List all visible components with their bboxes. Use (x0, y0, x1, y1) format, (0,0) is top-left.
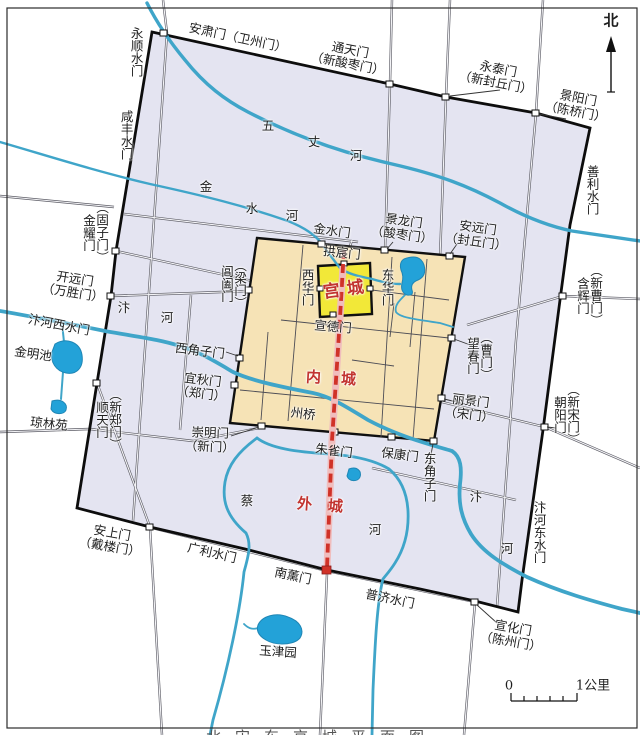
pond-zhuque (347, 468, 360, 481)
label-gate-shuntian: 顺天门 （新郑门） (95, 388, 121, 451)
label-gate-chongming: 崇明门 （新门） (185, 425, 236, 455)
lake-jinmingchi (52, 341, 83, 374)
kaifeng-song-capital-map: 永顺水门 咸丰水门 汴河西水门 广利水门 普济水门 善利水门 汴河东水门 安肃门… (0, 0, 640, 735)
label-gate-wangchun: 望春门 （曹门） (466, 331, 492, 381)
label-inner-city: 内城 (306, 369, 377, 389)
label-river-jinshui-3: 河 (286, 209, 299, 223)
label-gate-hanhui: 含辉门 （新曹门） (576, 264, 602, 327)
label-river-wuzhang-3: 河 (350, 149, 363, 163)
scale-bar (511, 693, 577, 701)
label-gate-jinyao: 金耀门 （固子门） (82, 201, 108, 264)
label-river-bianhe-west-1: 汴 (118, 301, 131, 315)
nanxun-gate-marker (322, 566, 331, 574)
label-gate-changhe: 阊阖门 （梁门） (220, 259, 246, 309)
label-xianfeng-water-gate: 咸丰水门 (119, 110, 132, 160)
pond-yujinyuan (257, 615, 302, 644)
label-river-bianhe-west-2: 河 (161, 311, 174, 325)
north-arrow (606, 36, 616, 92)
label-gate-donghua: 东华门 (380, 268, 393, 306)
label-gate-yiqiu: 宜秋门 （郑门） (175, 370, 228, 404)
scale-zero: 0 (505, 680, 513, 695)
label-shanli-water-gate: 善利水门 (585, 165, 598, 215)
label-river-bianhe-east-1: 汴 (470, 490, 483, 504)
scale-one-km: 1公里 (576, 680, 610, 695)
label-river-jinshui-1: 金 (200, 180, 213, 194)
label-yongshun-water-gate: 永顺水门 (129, 27, 142, 77)
label-river-bianhe-east-2: 河 (501, 542, 514, 556)
label-gate-xihua: 西华门 (300, 268, 313, 306)
label-yujinyuan: 玉津园 (259, 644, 297, 661)
label-river-wuzhang-1: 五 (262, 119, 275, 133)
label-gate-dongjiaozi: 东角子门 (422, 452, 435, 502)
label-gate-lijing: 丽景门 （宋门） (443, 391, 496, 425)
map-caption-partial: 北宋东京城平面图 (206, 726, 438, 735)
label-river-caihe-2: 河 (369, 523, 382, 537)
label-river-caihe-1: 蔡 (241, 494, 254, 508)
label-river-jinshui-2: 水 (246, 202, 259, 216)
north-label: 北 (603, 13, 618, 30)
label-bianhe-east-water-gate: 汴河东水门 (532, 501, 545, 564)
pond-qionglinyuan (51, 400, 66, 413)
label-river-wuzhang-2: 丈 (308, 135, 321, 149)
label-zhouqiao: 州桥 (290, 406, 317, 423)
label-gate-chaoyang: 朝阳门 （新宋门） (553, 383, 579, 446)
